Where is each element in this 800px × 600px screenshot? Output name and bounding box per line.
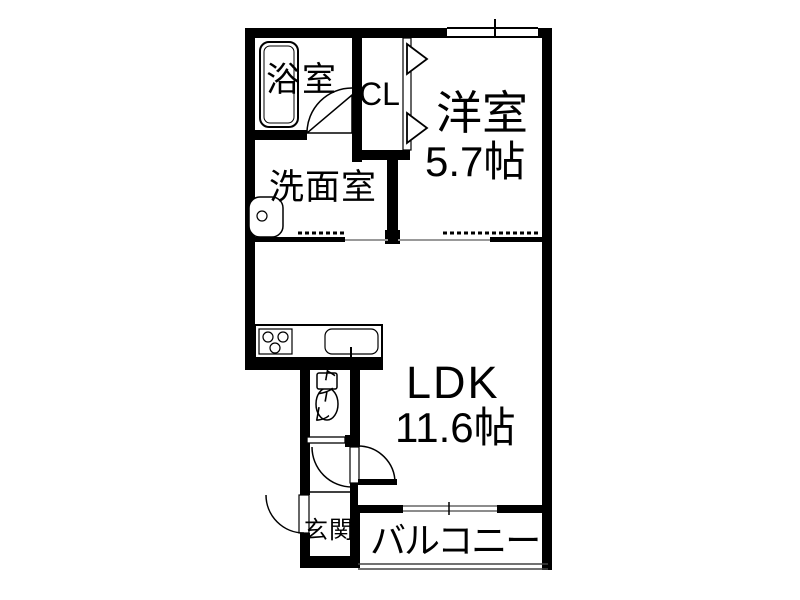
wall-divider-post [385,230,400,244]
wall-top-left [245,28,447,38]
bifold-door-triangle [407,44,427,74]
balcony-label: バルコニー [370,523,539,559]
sliding-window-balcony [403,502,497,515]
wall-strip-left-upper [300,370,310,495]
wall-closet-bottom [352,150,410,160]
floor-plan: 浴室 CL 洗面室 洋室 5.7帖 LDK 11.6帖 トイレ 玄関 バルコニー [0,0,800,600]
wall-balcony-top-left [352,505,403,513]
wall-divider-right [490,237,542,242]
bifold-door-triangle [407,113,427,143]
wall-right [542,28,552,570]
closet-label: CL [359,78,400,110]
ldk-label: LDK [406,360,500,405]
floor-plan-drawing [0,0,800,600]
door-swing-arc [266,495,304,533]
door-swing-arc [312,447,352,487]
kitchen-counter [255,325,382,362]
wall-balcony-top-right [497,505,552,513]
wall-toilet-door-post [345,435,360,447]
sliding-window-top [447,19,538,38]
ldk-size-label: 11.6帖 [395,407,516,449]
wall-bathroom-bottom [245,130,307,140]
ldk-door [350,446,397,485]
door-swing-arc [358,446,395,483]
stove-icon [259,329,292,354]
entrance-label: 玄関 [304,519,354,543]
western-room-label: 洋室 [436,90,528,136]
bathroom-label: 浴室 [266,63,338,97]
washroom-label: 洗面室 [269,170,377,205]
western-room-size-label: 5.7帖 [425,141,525,183]
balcony-edge [358,564,548,569]
closet-doors [403,38,427,150]
